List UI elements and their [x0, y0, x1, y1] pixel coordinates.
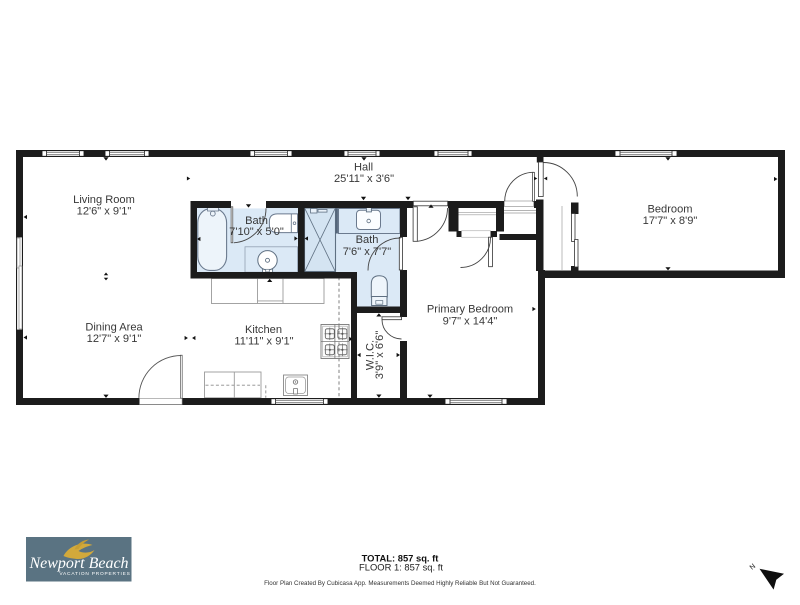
- svg-text:Kitchen: Kitchen: [245, 324, 282, 336]
- svg-text:9'7" x 14'4": 9'7" x 14'4": [443, 316, 498, 328]
- svg-text:7'6" x 7'7": 7'6" x 7'7": [343, 246, 392, 258]
- svg-text:25'11" x 3'6": 25'11" x 3'6": [334, 173, 394, 185]
- svg-text:Primary Bedroom: Primary Bedroom: [427, 304, 513, 316]
- svg-text:FLOOR 1: 857 sq. ft: FLOOR 1: 857 sq. ft: [359, 562, 443, 573]
- svg-text:12'7" x 9'1": 12'7" x 9'1": [87, 333, 142, 345]
- svg-text:Newport Beach: Newport Beach: [28, 555, 128, 572]
- svg-text:Bath: Bath: [356, 234, 379, 246]
- svg-text:11'11" x 9'1": 11'11" x 9'1": [234, 336, 293, 348]
- svg-text:17'7" x 8'9": 17'7" x 8'9": [643, 215, 698, 227]
- svg-text:Hall: Hall: [354, 162, 373, 174]
- svg-text:7'10" x 5'0": 7'10" x 5'0": [229, 226, 284, 238]
- svg-text:12'6" x 9'1": 12'6" x 9'1": [77, 206, 132, 218]
- svg-text:Bedroom: Bedroom: [647, 203, 692, 215]
- svg-text:3'9" x 6'6": 3'9" x 6'6": [374, 331, 386, 380]
- svg-text:VACATION PROPERTIES: VACATION PROPERTIES: [59, 571, 130, 577]
- svg-text:Floor Plan Created By Cubicasa: Floor Plan Created By Cubicasa App. Meas…: [264, 580, 536, 587]
- svg-text:Dining Area: Dining Area: [85, 321, 143, 333]
- svg-text:Living Room: Living Room: [73, 194, 135, 206]
